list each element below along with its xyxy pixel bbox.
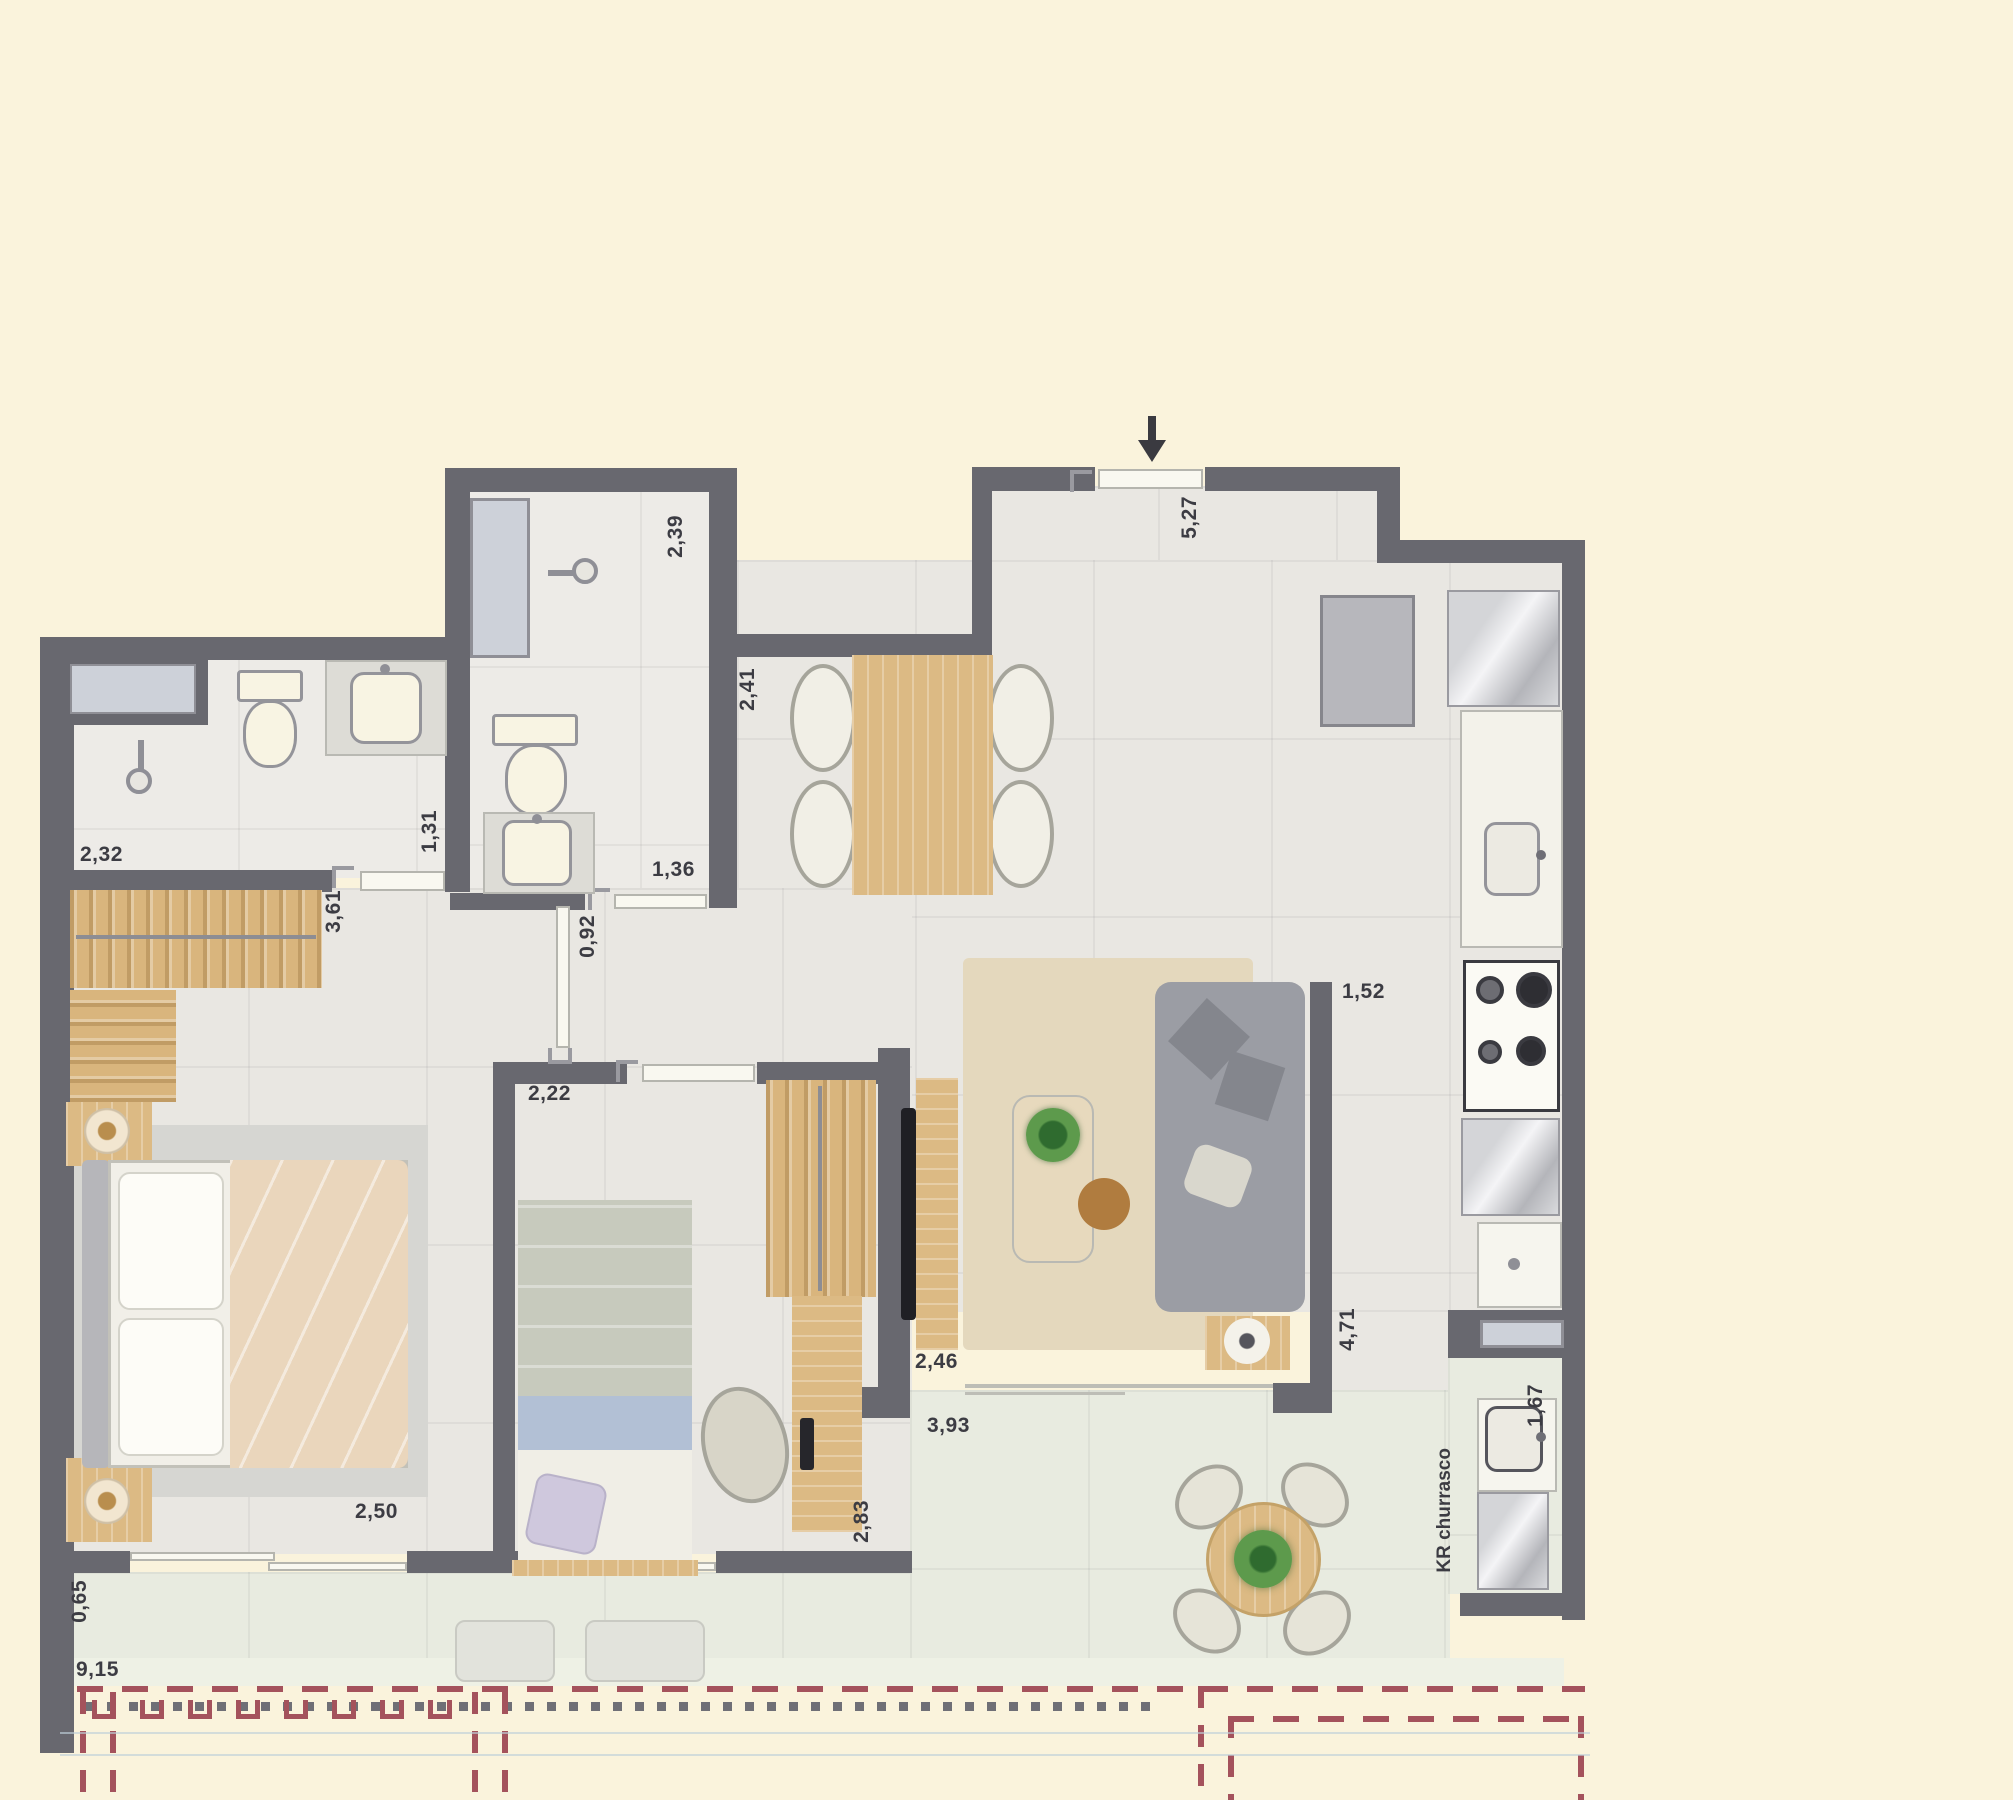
entry-door-hinge-icon — [1070, 470, 1092, 492]
side-table-lamp-icon — [1224, 1318, 1270, 1364]
master-lamp-2-icon — [84, 1478, 130, 1524]
terrace-plant-icon — [1234, 1530, 1292, 1588]
churrasco-faucet-icon — [1536, 1432, 1546, 1442]
bath2-shower-glass — [470, 498, 530, 658]
boundary-dash-v5 — [1198, 1686, 1204, 1800]
railing-post — [428, 1700, 452, 1719]
wall-entry-top-right — [1205, 467, 1400, 491]
balcony-bench-1 — [455, 1620, 555, 1682]
wall-sofa-back — [1310, 982, 1332, 1387]
dim-kitchen-passage: 1,52 — [1342, 980, 1385, 1004]
dim-bedroom2-width: 2,22 — [528, 1082, 571, 1106]
entry-arrow-icon — [1148, 416, 1156, 442]
living-terrace-slider-track2 — [965, 1392, 1125, 1395]
tv-console — [916, 1078, 958, 1350]
entry-arrow-head-icon — [1138, 440, 1166, 462]
wall-churrasco-bottom — [1460, 1593, 1585, 1616]
boundary-dash-v1 — [80, 1692, 86, 1800]
bath2-shower-head-icon — [572, 558, 598, 584]
dining-chair-3 — [988, 664, 1054, 772]
bedroom2-door-hinge-icon — [616, 1060, 638, 1082]
dining-table — [852, 655, 993, 895]
wall-bath2-right — [709, 468, 737, 908]
wall-balcony-1 — [40, 1551, 130, 1573]
bed2-blanket — [518, 1200, 692, 1408]
wall-bedroom2-left — [493, 1062, 515, 1573]
guide-line-1 — [60, 1732, 1590, 1734]
dim-churrasco-width: 1,67 — [1524, 1384, 1548, 1427]
boundary-dash-v7 — [1578, 1716, 1584, 1800]
bath2-faucet-icon — [532, 814, 542, 824]
entry-door-leaf — [1098, 469, 1203, 489]
wall-bath1-bottom — [40, 870, 332, 892]
floor-plan: 2,39 2,41 5,27 2,32 1,31 1,36 0,92 3,61 … — [0, 0, 2013, 1800]
railing-post — [380, 1700, 404, 1719]
dim-master-wardrobe: 3,61 — [322, 890, 346, 933]
coffee-table-plant-icon — [1026, 1108, 1080, 1162]
wall-bath2-top — [445, 468, 737, 492]
stove-burner-3 — [1478, 1040, 1502, 1064]
bath1-door-hinge-icon — [332, 866, 354, 888]
railing-post — [332, 1700, 356, 1719]
kitchen-tall-cabinet — [1320, 595, 1415, 727]
bath1-shower-head-icon — [126, 768, 152, 794]
laundry-faucet-icon — [1508, 1258, 1520, 1270]
wall-balcony-3 — [716, 1551, 912, 1573]
terrace-floor — [910, 1390, 1450, 1686]
dining-chair-1 — [790, 664, 856, 772]
balcony-bench-2 — [585, 1620, 705, 1682]
bath2-sink-basin — [502, 820, 572, 886]
master-pillow-2 — [118, 1318, 224, 1456]
railing-post — [188, 1700, 212, 1719]
dim-desk-length: 2,83 — [850, 1500, 874, 1543]
railing-post — [236, 1700, 260, 1719]
dim-bath1-depth: 1,31 — [418, 810, 442, 853]
fridge — [1447, 590, 1560, 707]
master-lamp-1-icon — [84, 1108, 130, 1154]
wall-balcony-2 — [407, 1551, 520, 1573]
bath2-door-leaf — [614, 894, 707, 909]
bath1-toilet-tank — [237, 670, 303, 702]
dim-balcony-length: 9,15 — [76, 1658, 119, 1682]
churrasco-window — [1480, 1320, 1564, 1348]
coffee-table-stool — [1078, 1178, 1130, 1230]
master-wardrobe-rod — [76, 935, 316, 939]
tv-icon — [901, 1108, 916, 1320]
wall-recess-bottom — [724, 634, 990, 657]
dim-balcony-depth: 0,65 — [68, 1580, 92, 1623]
dim-living-depth: 4,71 — [1336, 1308, 1360, 1351]
boundary-dash-v6 — [1228, 1716, 1234, 1800]
master-door-leaf — [556, 906, 570, 1048]
dim-bath2-door: 1,36 — [652, 858, 695, 882]
kitchen-counter-steel — [1461, 1118, 1560, 1216]
master-headboard — [82, 1160, 110, 1468]
boundary-dash-v4 — [502, 1692, 508, 1800]
boundary-dash-lower-right — [1228, 1716, 1585, 1722]
bed2-blanket-fold — [518, 1396, 692, 1452]
railing-post — [284, 1700, 308, 1719]
bath1-door-leaf — [360, 871, 445, 891]
railing-post — [140, 1700, 164, 1719]
bed2-headboard — [512, 1560, 698, 1576]
wall-recess-right — [972, 467, 992, 657]
stove-burner-2 — [1516, 972, 1552, 1008]
bedroom2-wardrobe-rod — [818, 1086, 822, 1291]
master-balcony-slider-leaf2 — [268, 1562, 407, 1571]
bath2-toilet-tank — [492, 714, 578, 746]
bath1-toilet-bowl — [243, 700, 297, 768]
master-duvet — [230, 1160, 408, 1468]
wall-right — [1562, 540, 1585, 1620]
dim-bath2-width: 2,39 — [664, 515, 688, 558]
dim-bath1-width: 2,32 — [80, 843, 123, 867]
wall-sofa-cap — [1273, 1383, 1332, 1413]
kitchen-sink — [1484, 822, 1540, 896]
terrace-edge-strip — [70, 1658, 1564, 1686]
boundary-dash-top — [77, 1686, 1585, 1692]
master-pillow-1 — [118, 1172, 224, 1310]
dim-entry-depth: 5,27 — [1178, 496, 1202, 539]
master-wardrobe-left — [70, 990, 176, 1102]
barbecue-grill — [1477, 1492, 1549, 1590]
wall-kitchen-top — [1398, 540, 1585, 563]
churrasco-area-label: KR churrasco — [1434, 1448, 1456, 1573]
bed2-pillow — [523, 1471, 608, 1556]
bath1-faucet-icon — [380, 664, 390, 674]
kitchen-faucet-icon — [1536, 850, 1546, 860]
dim-master-width: 2,50 — [355, 1500, 398, 1524]
desk-monitor-icon — [800, 1418, 814, 1470]
wall-bath-divider — [445, 468, 470, 892]
boundary-dash-v2 — [110, 1692, 116, 1800]
bedroom2-door-leaf — [642, 1064, 755, 1082]
desk — [792, 1296, 862, 1532]
dim-living-width-upper: 2,46 — [915, 1350, 958, 1374]
dining-chair-4 — [988, 780, 1054, 888]
bath1-sink-basin — [350, 672, 422, 744]
stove-burner-1 — [1476, 976, 1504, 1004]
boundary-dash-v3 — [472, 1692, 478, 1800]
master-balcony-slider-leaf1 — [130, 1552, 275, 1561]
wall-entry-step — [1377, 467, 1400, 563]
guide-line-2 — [60, 1754, 1590, 1756]
bath1-window — [70, 664, 196, 714]
dim-living-width-lower: 3,93 — [927, 1414, 970, 1438]
master-door-hinge-icon — [548, 1048, 572, 1064]
dining-chair-2 — [790, 780, 856, 888]
bath2-toilet-bowl — [505, 744, 567, 816]
master-wardrobe-top — [70, 890, 322, 988]
living-terrace-slider-track — [965, 1384, 1273, 1388]
dim-hall-width: 0,92 — [576, 915, 600, 958]
stove-burner-4 — [1516, 1036, 1546, 1066]
dim-dining-width: 2,41 — [736, 668, 760, 711]
